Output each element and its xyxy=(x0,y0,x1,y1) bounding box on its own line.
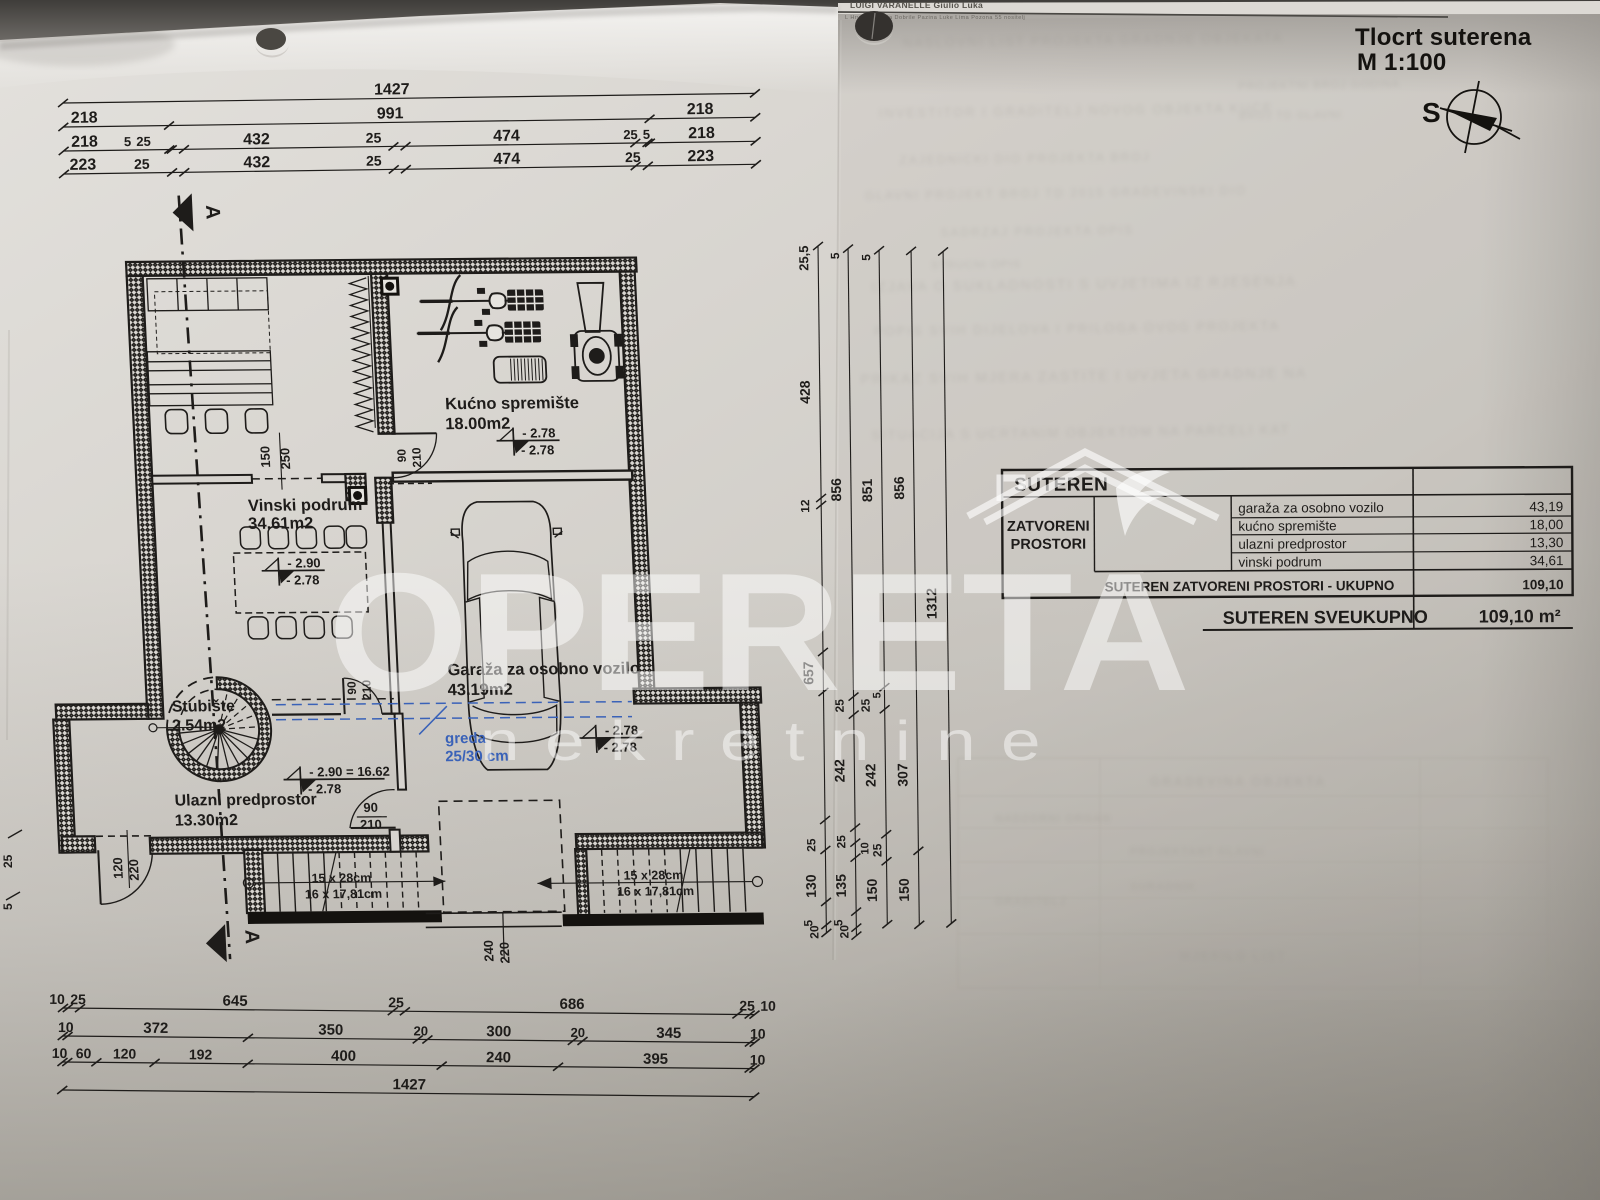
svg-text:nekretnine: nekretnine xyxy=(480,709,1066,772)
svg-text:BROJ TD GLAVNI: BROJ TD GLAVNI xyxy=(1239,109,1343,122)
svg-text:13,30: 13,30 xyxy=(1530,535,1564,550)
svg-text:kućno spremište: kućno spremište xyxy=(1238,518,1336,534)
svg-text:ZATVORENI: ZATVORENI xyxy=(1007,519,1090,535)
svg-text:432: 432 xyxy=(243,154,270,171)
svg-text:10: 10 xyxy=(750,1052,766,1068)
svg-text:12: 12 xyxy=(798,499,812,513)
svg-text:25: 25 xyxy=(388,994,404,1010)
svg-text:Vinski podrum: Vinski podrum xyxy=(248,496,363,515)
svg-text:218: 218 xyxy=(687,101,714,118)
svg-text:1427: 1427 xyxy=(374,81,410,98)
svg-text:16 x 17,81cm: 16 x 17,81cm xyxy=(305,887,383,902)
svg-text:LUIGI VARANELLE Giulio Luka: LUIGI VARANELLE Giulio Luka xyxy=(850,0,983,10)
svg-text:220: 220 xyxy=(497,942,513,964)
svg-text:13.30m2: 13.30m2 xyxy=(174,812,238,830)
svg-text:120: 120 xyxy=(110,857,126,879)
svg-text:16 x 17,81cm: 16 x 17,81cm xyxy=(617,884,695,899)
svg-text:5: 5 xyxy=(859,254,873,261)
svg-text:428: 428 xyxy=(797,380,813,404)
svg-text:M 1:100: M 1:100 xyxy=(1357,49,1446,76)
svg-text:218: 218 xyxy=(71,110,98,127)
svg-text:5: 5 xyxy=(124,134,131,149)
svg-text:109,10 m²: 109,10 m² xyxy=(1479,606,1561,626)
svg-text:120: 120 xyxy=(113,1045,137,1061)
svg-text:130: 130 xyxy=(803,874,819,898)
svg-text:300: 300 xyxy=(486,1023,511,1040)
svg-text:345: 345 xyxy=(656,1025,681,1042)
svg-text:A: A xyxy=(240,930,263,945)
svg-text:18,00: 18,00 xyxy=(1529,517,1563,532)
svg-text:Ulazni predprostor: Ulazni predprostor xyxy=(174,791,317,809)
svg-text:60: 60 xyxy=(76,1045,92,1061)
svg-text:OPERETA: OPERETA xyxy=(328,538,1190,726)
svg-text:25: 25 xyxy=(870,843,884,857)
svg-text:25,5: 25,5 xyxy=(796,245,811,270)
svg-text:- 2.90: - 2.90 xyxy=(287,555,321,570)
svg-text:856: 856 xyxy=(828,478,844,502)
svg-text:90: 90 xyxy=(394,449,409,463)
svg-text:20: 20 xyxy=(837,925,851,939)
svg-text:5: 5 xyxy=(643,127,650,142)
svg-text:991: 991 xyxy=(377,105,404,122)
svg-text:- 2.90 = 16.62: - 2.90 = 16.62 xyxy=(309,764,390,780)
svg-text:856: 856 xyxy=(891,476,907,500)
svg-text:90: 90 xyxy=(363,800,378,815)
svg-text:400: 400 xyxy=(331,1048,356,1065)
svg-text:18.00m2: 18.00m2 xyxy=(445,415,511,434)
svg-text:25: 25 xyxy=(136,134,151,149)
svg-text:150: 150 xyxy=(896,878,912,902)
svg-text:- 2.78: - 2.78 xyxy=(522,425,556,440)
svg-text:NADZORNI ORGAN: NADZORNI ORGAN xyxy=(995,813,1111,825)
svg-text:150: 150 xyxy=(864,878,880,902)
svg-text:A: A xyxy=(201,205,224,220)
svg-text:2.54m2: 2.54m2 xyxy=(172,717,227,734)
svg-text:ulazni predprostor: ulazni predprostor xyxy=(1238,536,1347,552)
svg-text:25: 25 xyxy=(623,127,638,142)
svg-text:218: 218 xyxy=(688,125,715,142)
svg-text:Tlocrt suterena: Tlocrt suterena xyxy=(1355,24,1532,51)
svg-text:34,61: 34,61 xyxy=(1530,553,1564,568)
svg-text:- 2.78: - 2.78 xyxy=(286,572,320,587)
svg-text:25: 25 xyxy=(134,156,150,172)
svg-text:474: 474 xyxy=(493,151,520,168)
svg-text:PROJEKTNI BROJ GODINA: PROJEKTNI BROJ GODINA xyxy=(1238,78,1400,92)
svg-text:10: 10 xyxy=(58,1019,74,1035)
svg-text:25: 25 xyxy=(739,997,755,1013)
svg-text:150: 150 xyxy=(257,446,273,468)
svg-text:686: 686 xyxy=(559,996,584,1013)
svg-text:vinski podrum: vinski podrum xyxy=(1238,554,1321,569)
svg-text:25: 25 xyxy=(366,153,382,169)
svg-text:GRADEVINA OBJEKTA: GRADEVINA OBJEKTA xyxy=(1150,774,1326,789)
svg-text:432: 432 xyxy=(243,131,270,148)
svg-text:350: 350 xyxy=(318,1021,343,1038)
svg-text:15 x 28cm: 15 x 28cm xyxy=(623,868,683,883)
svg-text:395: 395 xyxy=(643,1051,668,1068)
svg-text:25: 25 xyxy=(834,835,848,849)
svg-text:34.61m2: 34.61m2 xyxy=(248,514,314,533)
svg-text:109,10: 109,10 xyxy=(1522,577,1563,592)
svg-text:20: 20 xyxy=(807,925,821,939)
svg-text:250: 250 xyxy=(277,448,293,470)
svg-text:10: 10 xyxy=(750,1026,766,1042)
svg-text:1427: 1427 xyxy=(393,1076,427,1093)
svg-text:10: 10 xyxy=(760,998,776,1014)
svg-text:Stubište: Stubište xyxy=(171,698,235,716)
svg-text:S: S xyxy=(1422,97,1441,128)
svg-text:STRUCNI OPIS: STRUCNI OPIS xyxy=(931,259,1021,272)
svg-text:10: 10 xyxy=(49,991,65,1007)
svg-text:- 2.78: - 2.78 xyxy=(521,442,555,457)
svg-text:474: 474 xyxy=(493,128,520,145)
svg-text:25: 25 xyxy=(1,854,15,868)
svg-text:SUTEREN SVEUKUPNO: SUTEREN SVEUKUPNO xyxy=(1223,607,1428,628)
svg-text:15 x 28cm: 15 x 28cm xyxy=(311,871,371,886)
svg-text:192: 192 xyxy=(189,1046,213,1062)
svg-text:135: 135 xyxy=(833,874,849,898)
svg-text:20: 20 xyxy=(413,1023,428,1038)
svg-text:210: 210 xyxy=(360,817,382,832)
svg-text:PROJEKTANT GLAVNI: PROJEKTANT GLAVNI xyxy=(1130,846,1265,858)
svg-text:MJERILO LIST: MJERILO LIST xyxy=(1180,949,1287,963)
svg-text:garaža za osobno vozilo: garaža za osobno vozilo xyxy=(1238,500,1384,516)
svg-text:223: 223 xyxy=(687,148,714,165)
svg-text:5: 5 xyxy=(828,252,842,259)
svg-text:SURADNIK: SURADNIK xyxy=(1130,881,1196,893)
svg-text:Kućno spremište: Kućno spremište xyxy=(445,394,580,413)
svg-text:43,19: 43,19 xyxy=(1529,499,1563,514)
svg-text:210: 210 xyxy=(409,447,424,467)
svg-text:218: 218 xyxy=(71,134,98,151)
svg-text:645: 645 xyxy=(222,993,247,1010)
svg-text:10: 10 xyxy=(52,1045,68,1061)
svg-text:25: 25 xyxy=(70,991,86,1007)
svg-text:851: 851 xyxy=(859,478,875,502)
svg-text:GRADITELJ: GRADITELJ xyxy=(995,896,1066,908)
svg-text:240: 240 xyxy=(486,1049,511,1066)
svg-text:20: 20 xyxy=(570,1025,585,1040)
svg-text:25: 25 xyxy=(625,149,641,165)
svg-text:SADRZAJ PROJEKTA OPIS: SADRZAJ PROJEKTA OPIS xyxy=(940,223,1134,240)
svg-text:25: 25 xyxy=(804,838,818,852)
svg-text:223: 223 xyxy=(69,157,96,174)
svg-text:372: 372 xyxy=(143,1020,168,1037)
svg-text:5: 5 xyxy=(1,903,15,910)
svg-text:240: 240 xyxy=(481,940,497,962)
svg-text:25: 25 xyxy=(366,130,382,146)
